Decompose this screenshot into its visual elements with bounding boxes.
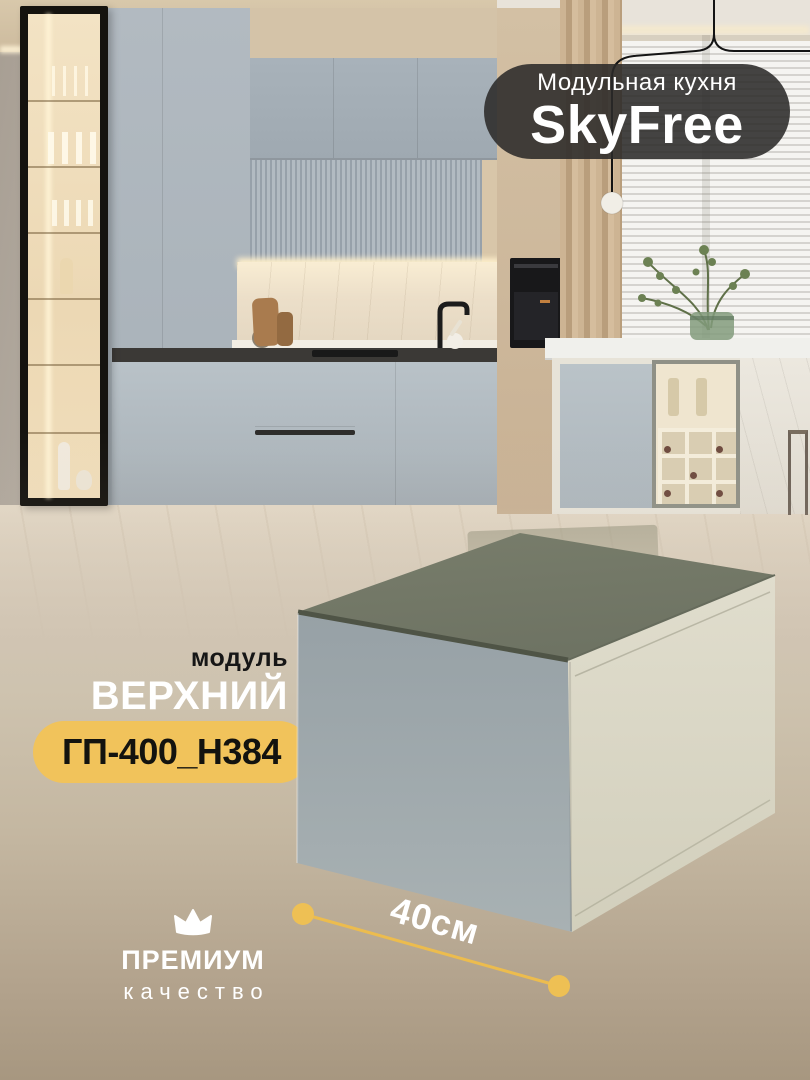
mortar: [447, 333, 463, 349]
crown-icon: [172, 908, 214, 936]
pendant-lamp: [601, 192, 623, 214]
plant-leaves: [638, 245, 750, 307]
vase-rim: [690, 316, 734, 320]
sku-pill: ГП-400_Н384: [33, 721, 310, 783]
module-kicker: модуль: [40, 645, 288, 673]
cutting-board: [277, 312, 293, 346]
sku-code: ГП-400_Н384: [62, 731, 281, 773]
brand-badge: Модульная кухня SkyFree: [484, 64, 790, 159]
product-card: Модульная кухня SkyFree модуль ВЕРХНИЙ Г…: [0, 0, 810, 1080]
module-name: ВЕРХНИЙ: [40, 675, 288, 717]
cooktop: [312, 350, 398, 357]
pestle: [452, 322, 460, 334]
premium-title: ПРЕМИУМ: [103, 945, 283, 976]
module-label: модуль ВЕРХНИЙ: [40, 645, 288, 717]
badge-subtitle: Модульная кухня: [537, 71, 737, 95]
brand-title: SkyFree: [530, 98, 744, 152]
premium-subtitle: качество: [103, 979, 283, 1005]
pendant-wire: [714, 34, 810, 51]
premium-mark: ПРЕМИУМ качество: [103, 908, 283, 1005]
cutting-board: [252, 297, 280, 346]
